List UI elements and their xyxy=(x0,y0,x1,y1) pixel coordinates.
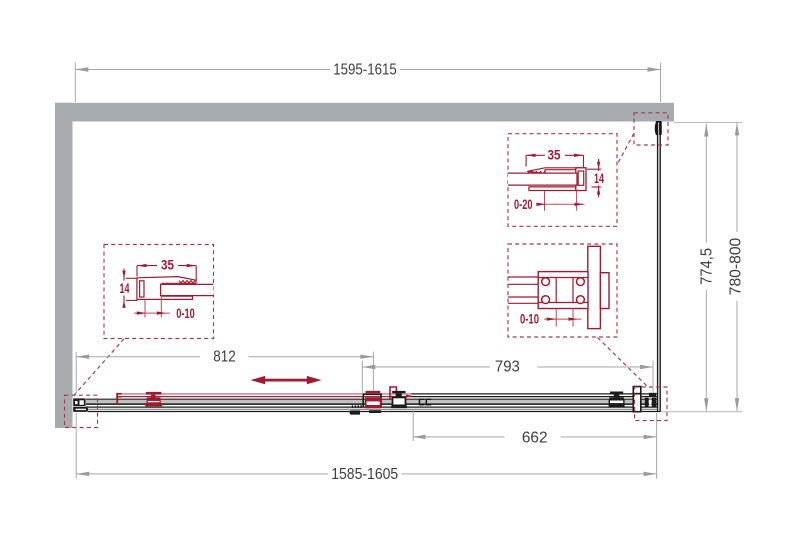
svg-text:662: 662 xyxy=(522,429,548,446)
svg-text:774,5: 774,5 xyxy=(698,248,715,285)
svg-text:1595-1615: 1595-1615 xyxy=(333,62,397,79)
svg-text:35: 35 xyxy=(548,147,561,162)
svg-text:1585-1605: 1585-1605 xyxy=(331,466,398,483)
svg-text:812: 812 xyxy=(213,349,236,366)
svg-text:0-10: 0-10 xyxy=(176,306,195,321)
svg-text:14: 14 xyxy=(120,281,130,296)
svg-text:0-20: 0-20 xyxy=(514,197,533,212)
svg-text:780-800: 780-800 xyxy=(728,238,745,296)
svg-text:35: 35 xyxy=(161,257,174,272)
svg-text:0-10: 0-10 xyxy=(520,311,539,326)
svg-text:14: 14 xyxy=(594,171,604,186)
svg-text:793: 793 xyxy=(495,359,520,376)
